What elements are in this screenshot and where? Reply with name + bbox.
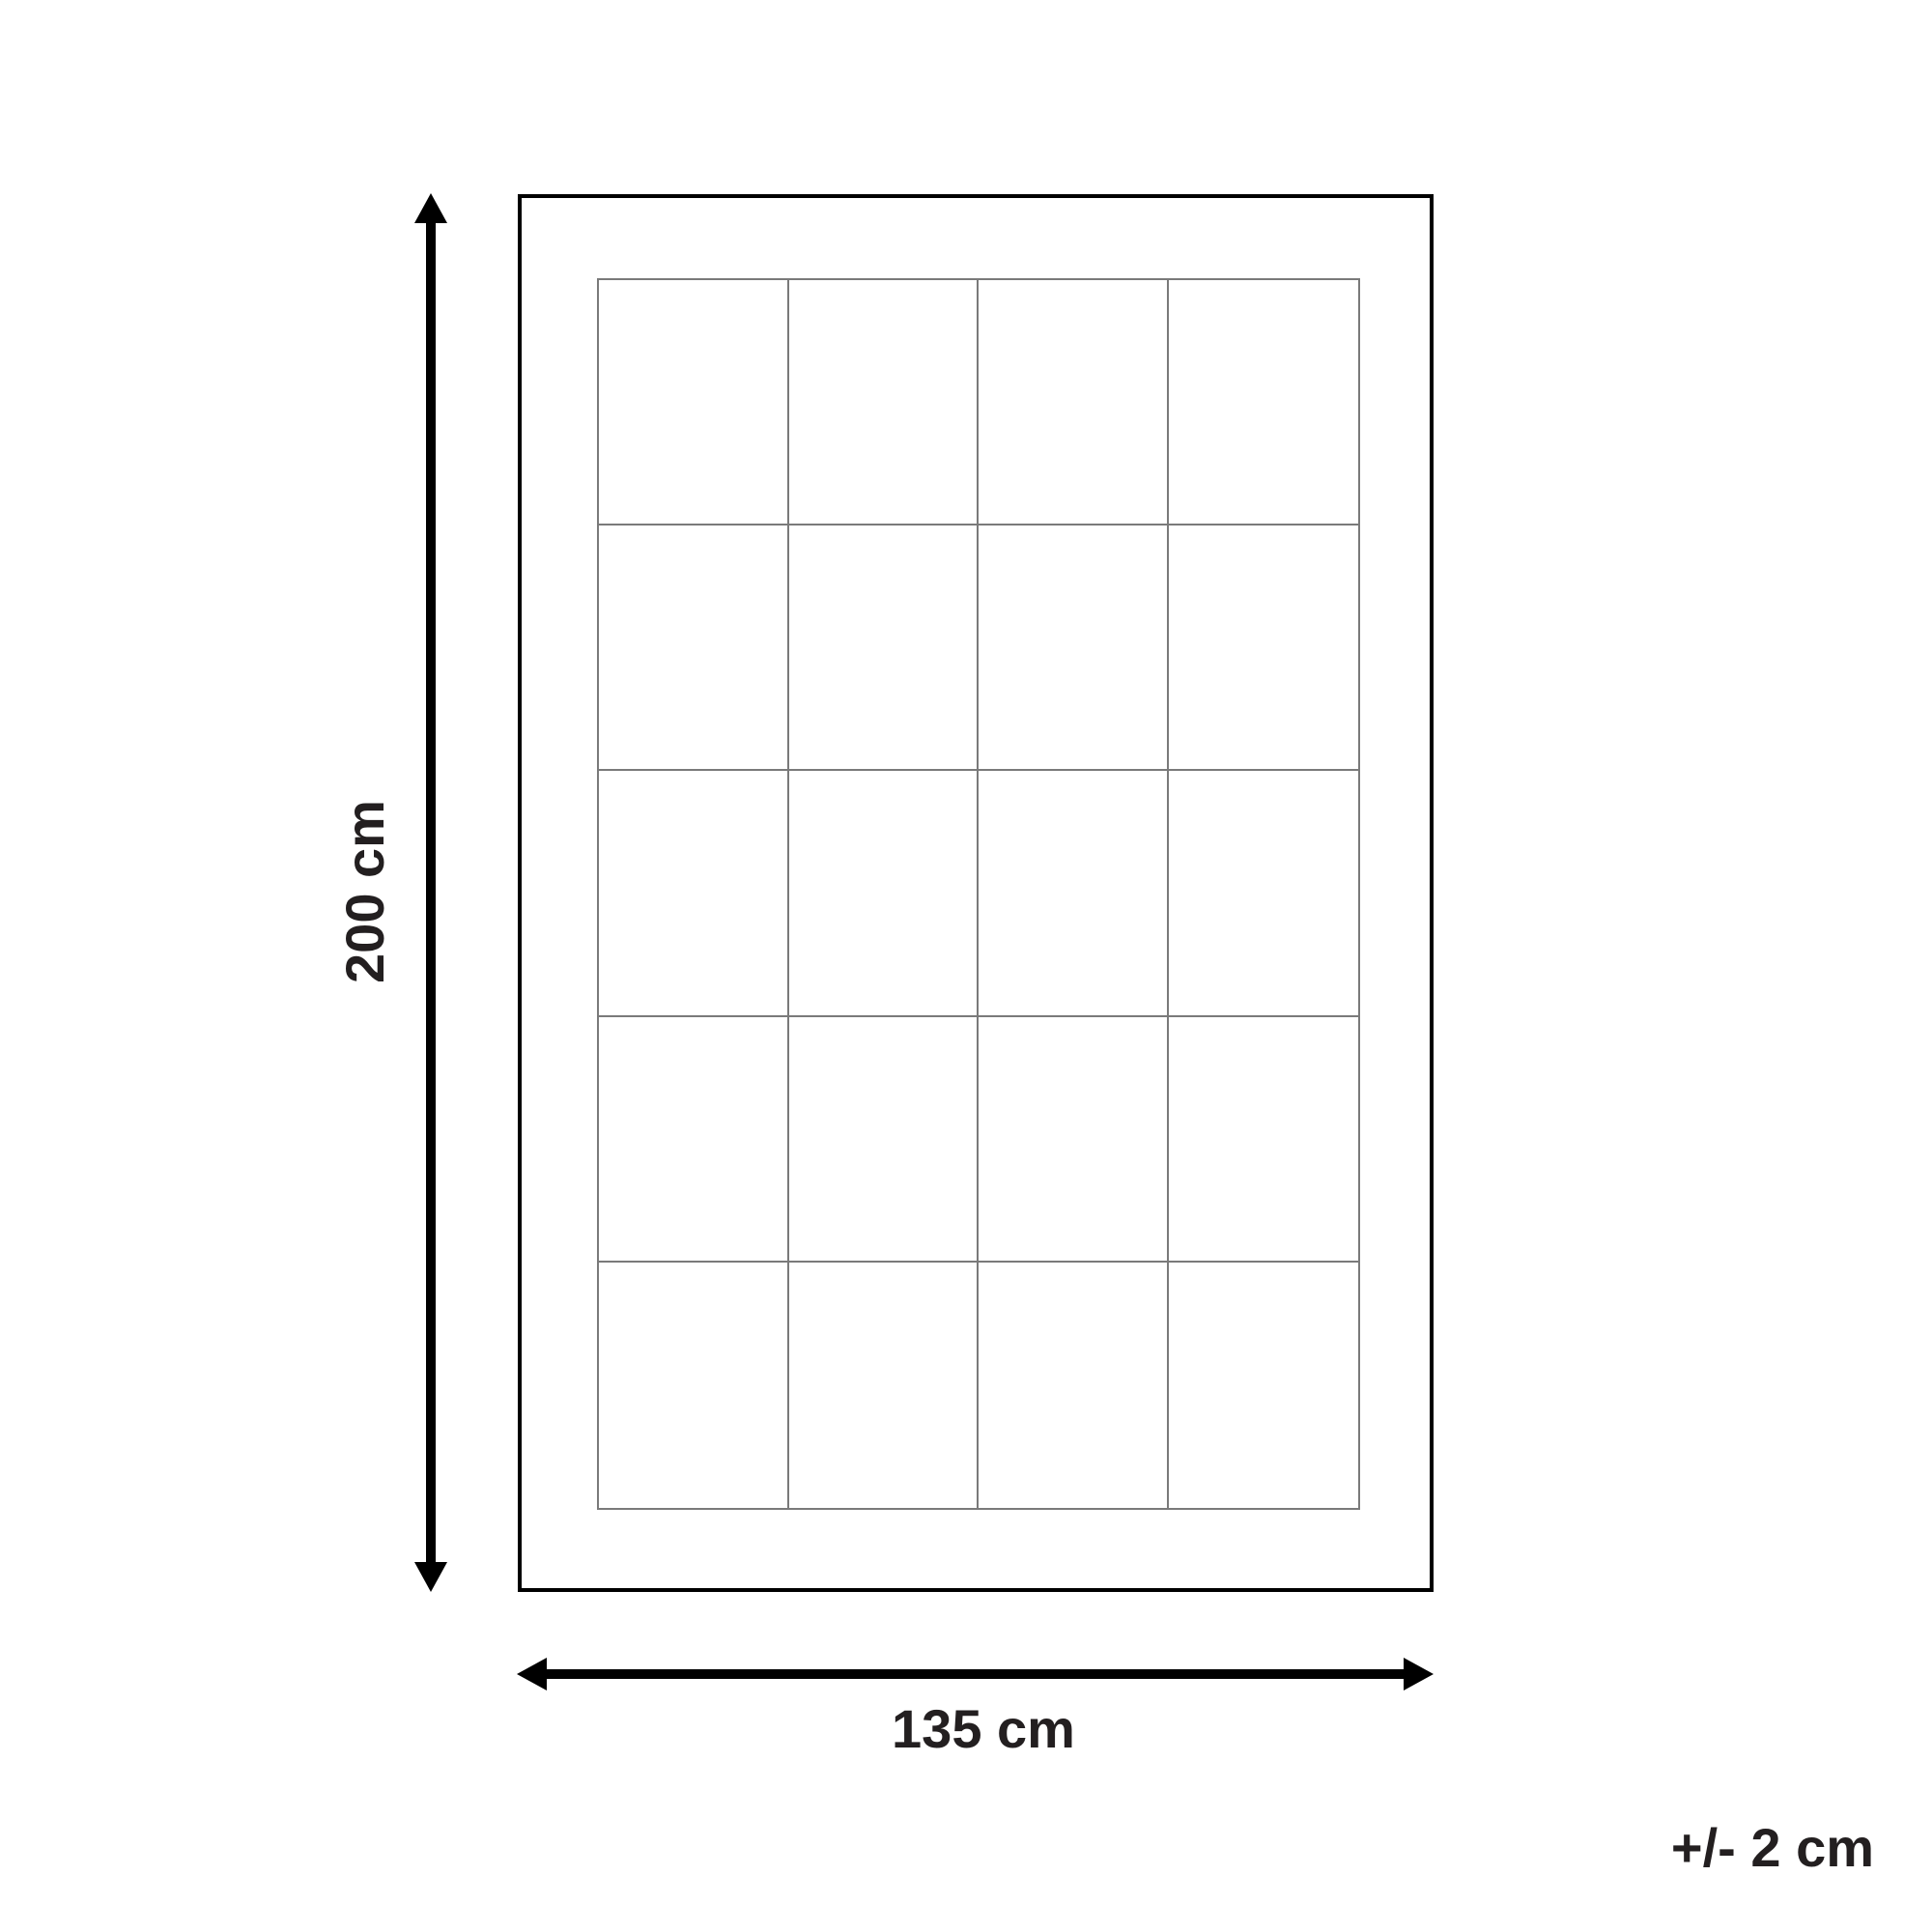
width-dimension-label: 135 cm <box>892 1702 1075 1756</box>
height-dimension-label: 200 cm <box>338 800 392 983</box>
height-arrow-head-top <box>414 193 447 223</box>
dimension-diagram: 200 cm 135 cm +/- 2 cm <box>0 0 1932 1932</box>
height-arrow-head-bottom <box>414 1562 447 1592</box>
tolerance-label: +/- 2 cm <box>1671 1821 1874 1875</box>
width-arrow-head-left <box>517 1658 547 1690</box>
dimension-arrows <box>0 0 1932 1932</box>
width-arrow <box>517 1658 1434 1690</box>
height-arrow <box>414 193 447 1592</box>
width-arrow-head-right <box>1404 1658 1434 1690</box>
